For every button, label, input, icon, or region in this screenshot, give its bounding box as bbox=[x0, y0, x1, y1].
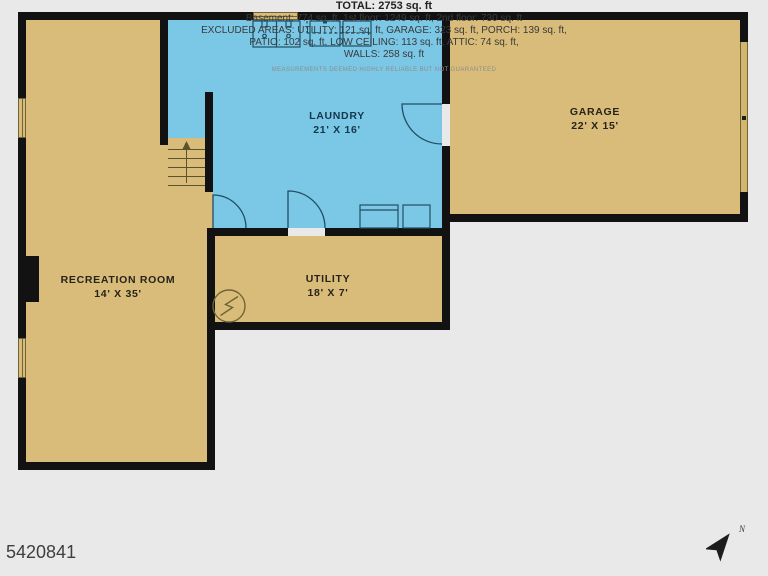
disclaimer-text: MEASUREMENTS DEEMED HIGHLY RELIABLE BUT … bbox=[0, 66, 768, 74]
window-left-upper bbox=[18, 98, 26, 138]
chimney-bump bbox=[26, 256, 39, 302]
window-left-lower bbox=[18, 338, 26, 378]
summary-line-walls: WALLS: 258 sq. ft bbox=[0, 49, 768, 61]
summary-line-patio: PATIO: 102 sq. ft, LOW CEILING: 113 sq. … bbox=[0, 37, 768, 49]
room-name: RECREATION ROOM bbox=[43, 273, 193, 287]
wall-left bbox=[18, 12, 26, 470]
wall-recreation-bottom bbox=[18, 462, 215, 470]
room-name: UTILITY bbox=[268, 272, 388, 286]
wall-laundry-bottom-left bbox=[215, 228, 288, 236]
listing-id: 5420841 bbox=[6, 542, 76, 563]
wall-recreation-right bbox=[207, 228, 215, 470]
summary-total: TOTAL: 2753 sq. ft bbox=[0, 0, 768, 13]
wall-stairwell bbox=[205, 92, 213, 192]
wall-laundry-bottom-right bbox=[325, 228, 450, 236]
wall-laundry-garage-lower bbox=[442, 146, 450, 330]
room-dims: 14' X 35' bbox=[43, 287, 193, 301]
north-label: N bbox=[738, 524, 746, 534]
room-label-utility: UTILITY 18' X 7' bbox=[268, 272, 388, 300]
area-summary: TOTAL: 2753 sq. ft Basement: 774 sq. ft,… bbox=[0, 0, 768, 74]
room-label-laundry: LAUNDRY 21' X 16' bbox=[277, 109, 397, 137]
wall-garage-bottom bbox=[442, 214, 748, 222]
summary-line-floors: Basement: 774 sq. ft, 1st floor: 1249 sq… bbox=[0, 13, 768, 25]
room-dims: 18' X 7' bbox=[268, 286, 388, 300]
north-arrow-icon: N bbox=[706, 520, 754, 568]
room-dims: 22' X 15' bbox=[535, 119, 655, 133]
summary-line-excluded: EXCLUDED AREAS: UTILITY: 121 sq. ft, GAR… bbox=[0, 25, 768, 37]
wall-garage-right-bottom bbox=[740, 192, 748, 222]
room-name: GARAGE bbox=[535, 105, 655, 119]
room-name: LAUNDRY bbox=[277, 109, 397, 123]
room-label-garage: GARAGE 22' X 15' bbox=[535, 105, 655, 133]
wall-utility-bottom bbox=[207, 322, 450, 330]
room-label-recreation: RECREATION ROOM 14' X 35' bbox=[43, 273, 193, 301]
room-dims: 21' X 16' bbox=[277, 123, 397, 137]
floor-plan-canvas: LAUNDRY 21' X 16' GARAGE 22' X 15' RECRE… bbox=[0, 0, 768, 576]
